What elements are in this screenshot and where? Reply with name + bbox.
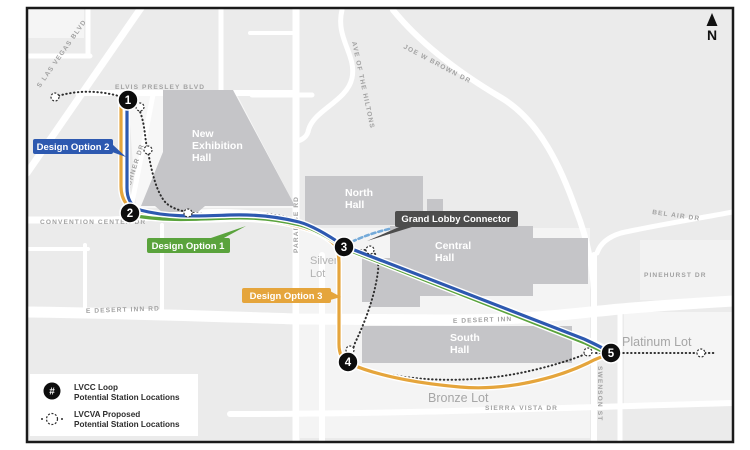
label-north-hall-2: Hall: [345, 199, 364, 211]
building-central-hall-south-step: [370, 294, 420, 307]
building-new-exhibition-hall-annex: [155, 206, 205, 212]
legend-lvcva-line1: LVCVA Proposed: [74, 410, 140, 419]
station-number-4: 4: [345, 357, 352, 369]
label-silver-lot-1: Silver: [310, 255, 338, 267]
label-south-hall-2: Hall: [450, 344, 469, 356]
station-number-5: 5: [608, 348, 615, 360]
street-label-sierra-vista-dr: SIERRA VISTA DR: [485, 405, 558, 412]
callout-label-grand-lobby-connector: Grand Lobby Connector: [401, 214, 511, 225]
station-number-3: 3: [341, 242, 347, 254]
dotted-station-icon: [47, 414, 58, 425]
legend: # LVCC Loop Potential Station Locations …: [30, 374, 198, 436]
station-marker-2: 2: [120, 203, 140, 223]
numbered-station-icon-glyph: #: [49, 387, 55, 398]
street-label-swenson-st: SWENSON ST: [596, 366, 603, 421]
label-central-hall-2: Hall: [435, 252, 454, 264]
legend-lvcva-line2: Potential Station Locations: [74, 420, 180, 429]
north-arrow-label: N: [707, 27, 717, 43]
callout-label-design-option-1: Design Option 1: [152, 241, 226, 252]
station-number-2: 2: [127, 208, 133, 220]
label-central-hall-1: Central: [435, 240, 471, 252]
map-canvas: S LAS VEGAS BLVD ELVIS PRESLEY BLVD KISH…: [0, 0, 750, 450]
label-north-hall-1: North: [345, 187, 373, 199]
label-new-exhibition-hall-2: Exhibition: [192, 140, 243, 152]
label-platinum-lot: Platinum Lot: [622, 335, 692, 349]
legend-lvcc-line2: Potential Station Locations: [74, 393, 180, 402]
label-new-exhibition-hall-3: Hall: [192, 152, 211, 164]
building-central-hall-east: [533, 238, 588, 284]
callout-design-option-3: Design Option 3: [242, 288, 341, 303]
callout-label-design-option-3: Design Option 3: [250, 291, 323, 302]
building-central-hall: [390, 226, 533, 296]
station-marker-3: 3: [334, 237, 354, 257]
station-marker-4: 4: [338, 352, 358, 372]
station-marker-1: 1: [118, 90, 138, 110]
callout-label-design-option-2: Design Option 2: [37, 142, 110, 153]
label-new-exhibition-hall-1: New: [192, 128, 214, 140]
label-bronze-lot: Bronze Lot: [428, 391, 489, 405]
dotted-station-icon-dot-left: [41, 418, 43, 420]
street-label-pinehurst-dr: PINEHURST DR: [644, 272, 707, 279]
station-number-1: 1: [125, 95, 132, 107]
label-silver-lot-2: Lot: [310, 268, 325, 280]
label-south-hall-1: South: [450, 332, 480, 344]
legend-lvcc-line1: LVCC Loop: [74, 383, 118, 392]
station-marker-5: 5: [601, 343, 621, 363]
dotted-station-icon-dot-right: [61, 418, 63, 420]
lvcc-loop-map: S LAS VEGAS BLVD ELVIS PRESLEY BLVD KISH…: [0, 0, 750, 450]
